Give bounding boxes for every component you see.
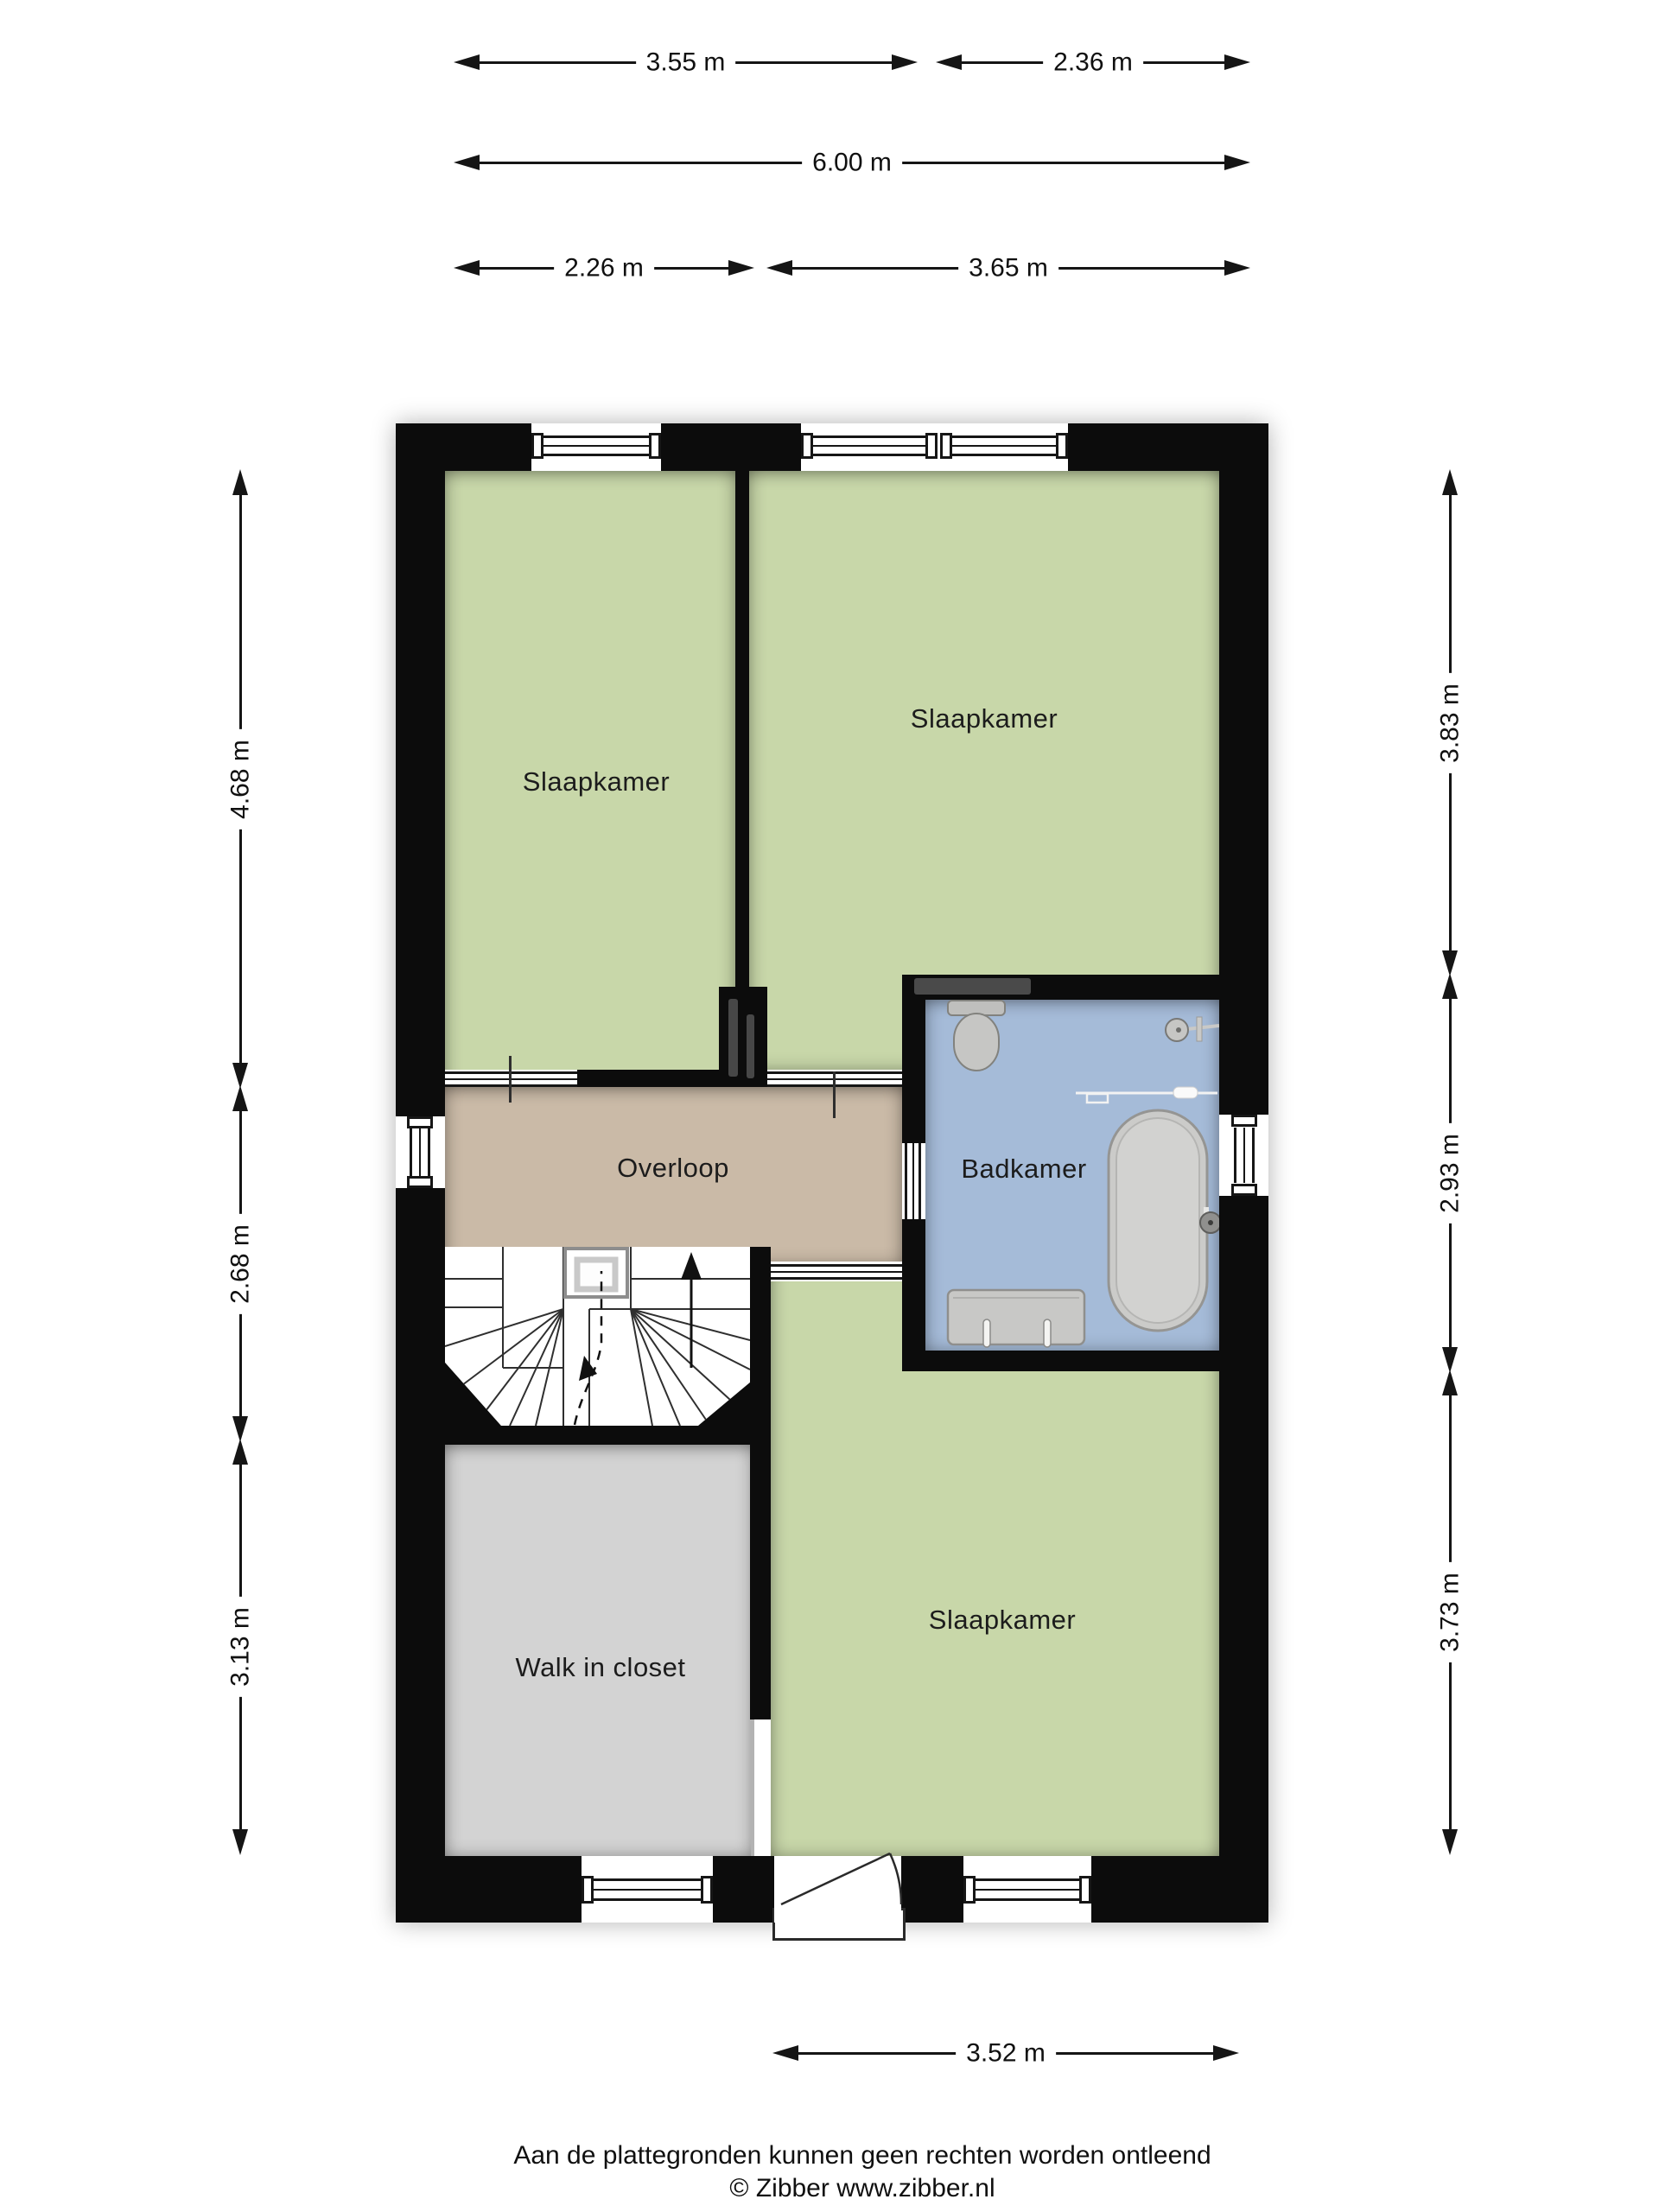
dimension-label: 3.83 m: [1433, 673, 1466, 773]
window-glass: [1234, 1128, 1255, 1183]
dimension-label: 3.52 m: [956, 2037, 1056, 2069]
toilet-icon: [948, 1001, 1005, 1071]
window-glass: [543, 435, 649, 456]
dimension-label: 2.36 m: [1043, 46, 1143, 79]
room-label-bedroom-top-right: Slaapkamer: [911, 703, 1058, 734]
window-post: [407, 1116, 433, 1128]
room-label-landing: Overloop: [617, 1153, 729, 1184]
window-glass: [813, 435, 925, 456]
window-glass: [410, 1128, 430, 1176]
dimension-label: 3.55 m: [636, 46, 736, 79]
dimension-label: 3.65 m: [958, 251, 1058, 284]
stair-void: [565, 1249, 627, 1297]
wall-bathroom-bottom: [902, 1351, 1219, 1371]
window-post: [1231, 1115, 1257, 1127]
footer-copyright: © Zibber www.zibber.nl: [729, 2174, 995, 2203]
room-label-bathroom: Badkamer: [961, 1154, 1086, 1185]
dimension-label: 3.73 m: [1433, 1562, 1466, 1662]
window-post: [963, 1876, 976, 1904]
door-pier-groove: [728, 999, 738, 1077]
closet-bedroom-boundary: [751, 1719, 754, 1856]
dimension-label: 2.26 m: [554, 251, 654, 284]
footer-disclaimer: Aan de plattegronden kunnen geen rechten…: [513, 2141, 1211, 2171]
window-post: [801, 433, 813, 459]
window-post: [701, 1876, 713, 1904]
wall-door-pier: [719, 987, 767, 1087]
dimension-label: 4.68 m: [224, 729, 257, 829]
dimension-label: 3.13 m: [224, 1597, 257, 1697]
room-label-bedroom-bottom: Slaapkamer: [929, 1605, 1076, 1636]
window-post: [1079, 1876, 1091, 1904]
window-glass: [976, 1878, 1079, 1901]
staircase: [445, 1247, 750, 1426]
window-post: [1231, 1184, 1257, 1196]
washbasin-icon: [948, 1290, 1084, 1347]
door-opening-lines: [771, 1264, 902, 1280]
dimension-label: 2.68 m: [224, 1214, 257, 1314]
door-tick: [833, 1071, 836, 1118]
bathtub-icon: [1109, 1110, 1219, 1331]
window-post: [531, 433, 543, 459]
floor-plan-page: Slaapkamer Slaapkamer Overloop Badkamer …: [0, 0, 1659, 2212]
door-opening-lines: [905, 1143, 921, 1219]
window-post: [649, 433, 661, 459]
dimension-label: 2.93 m: [1433, 1123, 1466, 1224]
towel-bar-icon: [1076, 1087, 1217, 1103]
window-post: [1056, 433, 1068, 459]
room-walk-in-closet: [445, 1445, 753, 1856]
wall-between-bedrooms: [735, 471, 749, 987]
window-post: [940, 433, 952, 459]
shower-icon: [1166, 1017, 1219, 1041]
door-pier-groove: [747, 1014, 754, 1078]
room-label-bedroom-top-left: Slaapkamer: [523, 766, 670, 798]
window-glass: [594, 1878, 701, 1901]
door-tick: [509, 1056, 512, 1103]
window-post: [582, 1876, 594, 1904]
window-post: [925, 433, 938, 459]
wall-closet-bedroom: [750, 1247, 771, 1719]
wall-landing-top: [577, 1070, 719, 1087]
room-label-closet: Walk in closet: [515, 1652, 685, 1683]
dimension-label: 6.00 m: [802, 146, 902, 179]
door-swing: [774, 1810, 921, 1923]
staircase-block: [445, 1247, 750, 1445]
bathroom-wall-radiator: [914, 978, 1031, 995]
window-glass: [947, 435, 1056, 456]
window-post: [407, 1176, 433, 1188]
